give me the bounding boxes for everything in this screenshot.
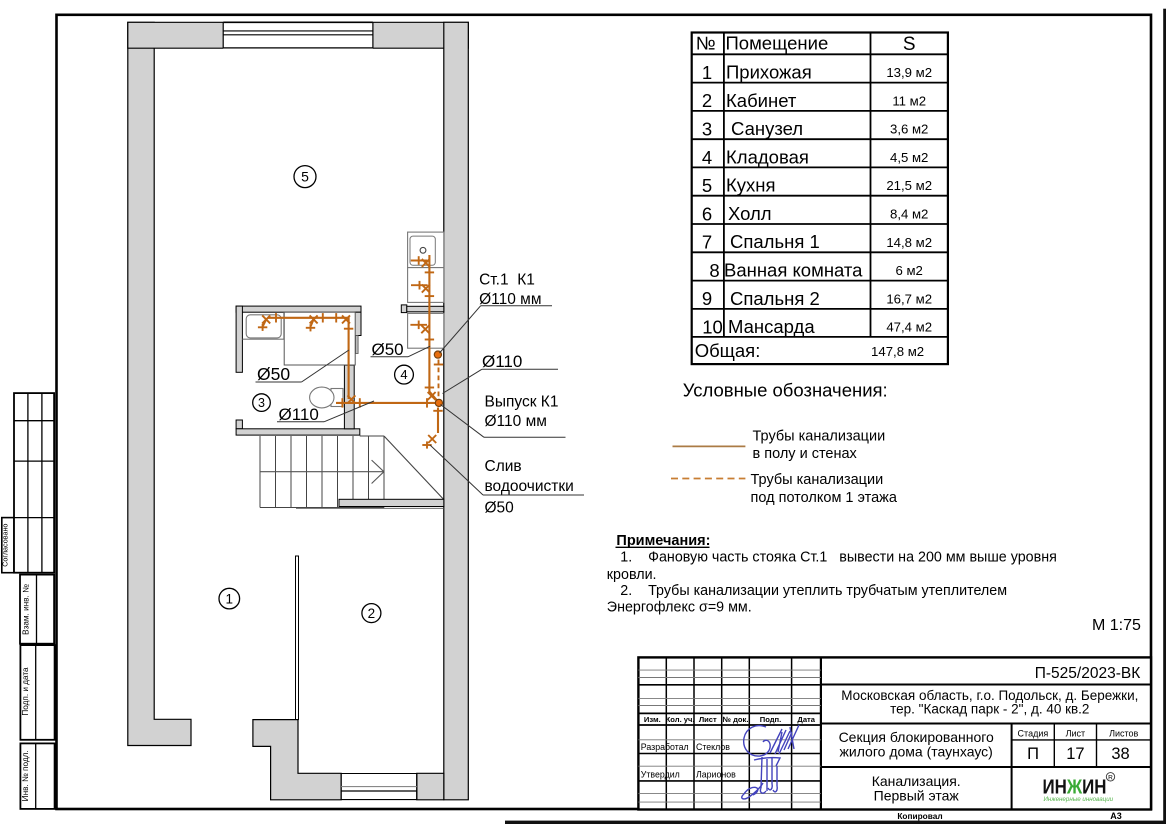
svg-text:6 м2: 6 м2 [895,263,922,278]
svg-text:Трубы канализации: Трубы канализации [751,472,884,488]
svg-text:Ванная комната: Ванная комната [724,260,863,281]
svg-text:Ø50: Ø50 [257,364,290,384]
svg-text:13,9 м2: 13,9 м2 [886,65,932,80]
svg-text:Ларионов: Ларионов [696,769,736,779]
svg-text:Стеклов: Стеклов [696,742,730,752]
svg-text:14,8 м2: 14,8 м2 [886,235,932,250]
svg-text:2: 2 [368,606,376,621]
svg-text:Прихожая: Прихожая [726,62,812,83]
svg-text:3,6 м2: 3,6 м2 [890,122,928,137]
svg-text:8,4 м2: 8,4 м2 [890,207,928,222]
svg-text:Листов: Листов [1109,729,1138,739]
svg-text:Общая:: Общая: [695,340,761,361]
svg-text:Ø50: Ø50 [372,340,404,359]
svg-text:5: 5 [702,175,712,196]
svg-text:Инженерные инновации: Инженерные инновации [1044,796,1114,803]
svg-text:А3: А3 [1110,811,1122,821]
svg-text:Утвердил: Утвердил [641,769,680,779]
svg-text:17: 17 [1066,745,1084,763]
svg-text:П-525/2023-ВК: П-525/2023-ВК [1035,665,1140,682]
svg-text:Помещение: Помещение [726,33,829,54]
svg-text:2: 2 [702,90,712,111]
svg-text:Первый этаж: Первый этаж [874,788,960,804]
svg-text:М 1:75: М 1:75 [1092,617,1141,634]
svg-text:R: R [1108,775,1113,782]
svg-text:тер. "Каскад парк - 2", д. 40: тер. "Каскад парк - 2", д. 40 кв.2 [890,702,1089,717]
svg-text:Инв. № подл.: Инв. № подл. [21,750,30,801]
svg-text:Холл: Холл [728,203,772,224]
svg-text:10: 10 [702,317,723,338]
svg-text:11 м2: 11 м2 [892,93,926,108]
svg-text:16,7 м2: 16,7 м2 [886,291,932,306]
svg-text:6: 6 [702,203,712,224]
svg-text:Лист: Лист [1066,729,1086,739]
svg-text:Энергофлекс σ=9 мм.: Энергофлекс σ=9 мм. [607,600,752,616]
svg-text:жилого дома (таунхаус): жилого дома (таунхаус) [840,744,993,760]
svg-text:Подп.: Подп. [760,715,782,724]
svg-text:Изм.: Изм. [644,715,661,724]
svg-text:3: 3 [702,119,712,140]
svg-text:Ø110: Ø110 [279,405,319,424]
svg-text:1. Фановую часть стояка Ст.: 1. Фановую часть стояка Ст.1 вывести на … [620,550,1057,566]
svg-text:7: 7 [702,232,712,253]
svg-text:Мансарда: Мансарда [728,316,815,337]
svg-text:S: S [903,34,916,55]
svg-text:1: 1 [702,62,712,83]
svg-text:Спальня 1: Спальня 1 [730,231,820,252]
svg-text:Ø110: Ø110 [482,352,522,371]
svg-text:Ø110 мм: Ø110 мм [485,413,547,430]
svg-text:№: № [696,33,716,54]
svg-text:Подп. и дата: Подп. и дата [21,667,30,716]
svg-text:4,5 м2: 4,5 м2 [890,150,928,165]
svg-text:Ст.1 К1: Ст.1 К1 [479,272,535,289]
svg-text:38: 38 [1111,745,1129,763]
svg-text:3: 3 [258,396,265,410]
svg-text:Спальня 2: Спальня 2 [730,288,820,309]
svg-text:водоочистки: водоочистки [485,478,574,495]
svg-text:Взам. инв. №: Взам. инв. № [21,584,30,635]
svg-text:9: 9 [702,288,712,309]
svg-text:2. Трубы канализации утепли: 2. Трубы канализации утеплить трубчатым … [620,583,1007,599]
svg-text:под потолком 1 этажа: под потолком 1 этажа [751,490,898,506]
svg-text:Дата: Дата [797,715,815,724]
svg-text:кровли.: кровли. [607,567,657,583]
svg-text:Копировал: Копировал [897,811,942,821]
svg-text:Санузел: Санузел [731,118,803,139]
svg-text:Выпуск К1: Выпуск К1 [485,393,559,410]
svg-text:Лист: Лист [699,715,717,724]
svg-text:4: 4 [702,147,712,168]
svg-text:Ø50: Ø50 [485,500,515,517]
svg-text:8: 8 [709,260,719,281]
svg-text:21,5 м2: 21,5 м2 [886,178,932,193]
svg-text:Согласовано: Согласовано [1,524,10,567]
svg-text:Стадия: Стадия [1018,729,1049,739]
svg-text:№ док.: № док. [723,715,749,724]
svg-text:Условные обозначения:: Условные обозначения: [683,380,888,401]
svg-text:П: П [1027,745,1039,763]
svg-text:Слив: Слив [485,458,522,475]
svg-text:4: 4 [400,367,407,382]
svg-text:5: 5 [301,169,309,185]
svg-text:Кладовая: Кладовая [726,146,809,167]
svg-text:Кухня: Кухня [726,175,776,196]
svg-text:1: 1 [226,591,234,606]
svg-text:ИНЖИН: ИНЖИН [1043,777,1107,799]
svg-text:47,4 м2: 47,4 м2 [886,320,932,335]
svg-text:Трубы канализации: Трубы канализации [753,429,886,445]
svg-text:Кол. уч.: Кол. уч. [666,715,695,724]
svg-text:в полу и стенах: в полу и стенах [753,446,858,462]
svg-text:Кабинет: Кабинет [726,90,797,111]
svg-text:Разработал: Разработал [641,742,689,752]
svg-text:147,8 м2: 147,8 м2 [871,344,924,359]
